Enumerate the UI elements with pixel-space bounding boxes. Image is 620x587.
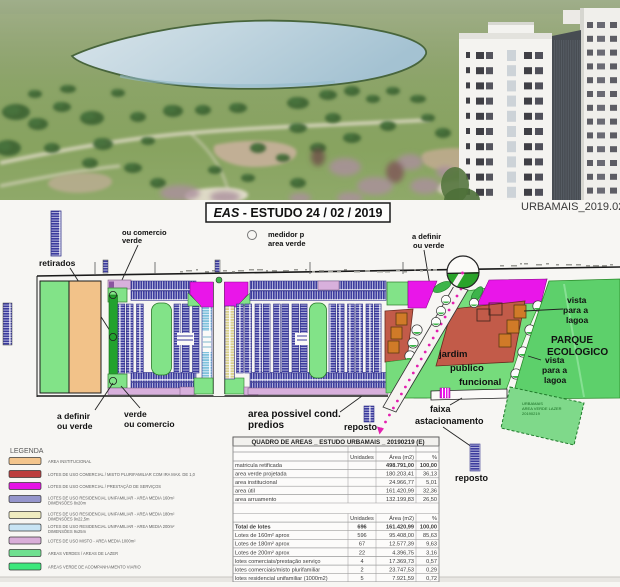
svg-text:23.747,53: 23.747,53 xyxy=(389,568,414,574)
svg-text:a definir: a definir xyxy=(412,232,441,241)
svg-text:161.420,99: 161.420,99 xyxy=(386,488,414,494)
svg-text:lotes comerciais/misto plurifa: lotes comerciais/misto plurifamiliar xyxy=(235,568,320,574)
svg-text:Lotes de 200m² aprox: Lotes de 200m² aprox xyxy=(235,550,290,556)
svg-text:vista: vista xyxy=(545,355,565,365)
svg-text:para a: para a xyxy=(542,365,567,375)
svg-text:vista: vista xyxy=(567,295,587,305)
svg-text:Área (m2): Área (m2) xyxy=(389,515,414,522)
svg-text:85,63: 85,63 xyxy=(423,533,437,539)
svg-text:32,36: 32,36 xyxy=(423,488,437,494)
svg-text:DIMENSÕES 8x20m: DIMENSÕES 8x20m xyxy=(48,501,87,506)
svg-text:100,00: 100,00 xyxy=(420,525,437,531)
svg-text:20190219: 20190219 xyxy=(522,411,541,416)
svg-text:retirados: retirados xyxy=(39,258,76,268)
svg-text:24.966,77: 24.966,77 xyxy=(389,480,414,486)
svg-text:PARQUE: PARQUE xyxy=(551,335,593,346)
svg-text:100,00: 100,00 xyxy=(420,463,437,469)
svg-text:verde: verde xyxy=(122,236,142,245)
svg-text:Total de lotes: Total de lotes xyxy=(235,525,271,531)
svg-text:596: 596 xyxy=(357,533,366,539)
svg-text:26,50: 26,50 xyxy=(423,497,437,503)
svg-text:LOTES DE USO COMERCIAL / PREST: LOTES DE USO COMERCIAL / PRESTAÇÃO DE SE… xyxy=(48,484,161,489)
svg-text:area verde projetada: area verde projetada xyxy=(235,472,288,478)
svg-text:area institucional: area institucional xyxy=(235,480,277,486)
svg-text:Unidades: Unidades xyxy=(350,455,374,461)
svg-text:0,29: 0,29 xyxy=(426,568,437,574)
svg-text:7.921,59: 7.921,59 xyxy=(392,576,414,582)
svg-text:95.408,00: 95.408,00 xyxy=(389,533,414,539)
svg-text:area arruamento: area arruamento xyxy=(235,497,276,503)
svg-text:161.420,99: 161.420,99 xyxy=(386,525,414,531)
svg-text:area útil: area útil xyxy=(235,488,255,494)
svg-text:696: 696 xyxy=(357,525,366,531)
svg-text:astacionamento: astacionamento xyxy=(415,416,484,426)
svg-text:DIMENSÕES 9x25m: DIMENSÕES 9x25m xyxy=(48,529,87,534)
svg-text:publico: publico xyxy=(450,363,484,374)
svg-text:URBAMAIS_2019.02: URBAMAIS_2019.02 xyxy=(521,201,620,213)
svg-text:%: % xyxy=(432,516,437,522)
svg-text:predios: predios xyxy=(248,420,285,431)
svg-text:67: 67 xyxy=(359,542,365,548)
svg-text:reposto: reposto xyxy=(455,473,489,483)
svg-text:DIMENSÕES 9x22,5m: DIMENSÕES 9x22,5m xyxy=(48,517,90,522)
svg-text:4: 4 xyxy=(360,559,363,565)
svg-text:lagoa: lagoa xyxy=(566,315,588,325)
svg-text:AREA INSTITUCIONAL: AREA INSTITUCIONAL xyxy=(48,459,92,464)
svg-text:498.791,00: 498.791,00 xyxy=(386,463,414,469)
svg-text:2: 2 xyxy=(360,568,363,574)
svg-text:0,72: 0,72 xyxy=(426,576,437,582)
svg-text:ou verde: ou verde xyxy=(57,421,93,431)
svg-text:0,57: 0,57 xyxy=(426,559,437,565)
svg-text:jardim: jardim xyxy=(438,349,468,360)
svg-text:ou verde: ou verde xyxy=(413,241,444,250)
svg-text:180.203,41: 180.203,41 xyxy=(386,472,414,478)
svg-text:ou comercio: ou comercio xyxy=(124,419,175,429)
svg-text:matricula retificada: matricula retificada xyxy=(235,463,283,469)
svg-text:QUADRO DE AREAS _ ESTUDO URBAM: QUADRO DE AREAS _ ESTUDO URBAMAIS _ 2019… xyxy=(251,439,424,446)
svg-text:9,63: 9,63 xyxy=(426,542,437,548)
svg-text:medidor p: medidor p xyxy=(268,230,305,239)
svg-text:funcional: funcional xyxy=(459,377,501,388)
svg-text:Lotes de 160m² aprox: Lotes de 160m² aprox xyxy=(235,533,290,539)
svg-text:lagoa: lagoa xyxy=(544,375,566,385)
svg-text:%: % xyxy=(432,455,437,461)
svg-text:3,16: 3,16 xyxy=(426,550,437,556)
svg-text:Unidades: Unidades xyxy=(350,516,374,522)
svg-text:a definir: a definir xyxy=(57,411,91,421)
svg-text:EAS - ESTUDO 24 / 02 / 2019: EAS - ESTUDO 24 / 02 / 2019 xyxy=(214,206,383,220)
svg-text:LEGENDA: LEGENDA xyxy=(10,448,44,455)
svg-text:lotes residencial unifamiliar: lotes residencial unifamiliar (1000m2) xyxy=(235,576,328,582)
svg-text:5: 5 xyxy=(360,576,363,582)
svg-text:AREAS VERDES / AREAS DE LAZER: AREAS VERDES / AREAS DE LAZER xyxy=(48,551,118,556)
svg-text:reposto: reposto xyxy=(344,422,378,432)
svg-text:Lotes de 180m² aprox: Lotes de 180m² aprox xyxy=(235,542,290,548)
svg-text:22: 22 xyxy=(359,550,365,556)
svg-text:36,13: 36,13 xyxy=(423,472,437,478)
svg-text:132.199,83: 132.199,83 xyxy=(386,497,414,503)
svg-text:faixa: faixa xyxy=(430,404,452,414)
svg-text:para a: para a xyxy=(563,305,588,315)
svg-text:verde: verde xyxy=(124,409,147,419)
svg-text:area verde: area verde xyxy=(268,239,306,248)
svg-text:LOTES DE USO COMERCIAL / MISTO: LOTES DE USO COMERCIAL / MISTO PLURIFAMI… xyxy=(48,472,196,477)
svg-text:LOTES DE USO MISTO - AREA MEDI: LOTES DE USO MISTO - AREA MEDIA 1000m² xyxy=(48,539,136,544)
svg-text:5,01: 5,01 xyxy=(426,480,437,486)
svg-text:4.396,75: 4.396,75 xyxy=(392,550,414,556)
svg-text:area possivel cond.: area possivel cond. xyxy=(248,409,341,420)
svg-text:17.369,73: 17.369,73 xyxy=(389,559,414,565)
svg-text:lotes comerciais/prestação ser: lotes comerciais/prestação serviço xyxy=(235,559,321,565)
svg-text:Área (m2): Área (m2) xyxy=(389,454,414,461)
svg-text:12.577,39: 12.577,39 xyxy=(389,542,414,548)
svg-text:AREAS VERDE DE ACOMPANHAMENTO: AREAS VERDE DE ACOMPANHAMENTO VIARIO xyxy=(48,565,141,570)
